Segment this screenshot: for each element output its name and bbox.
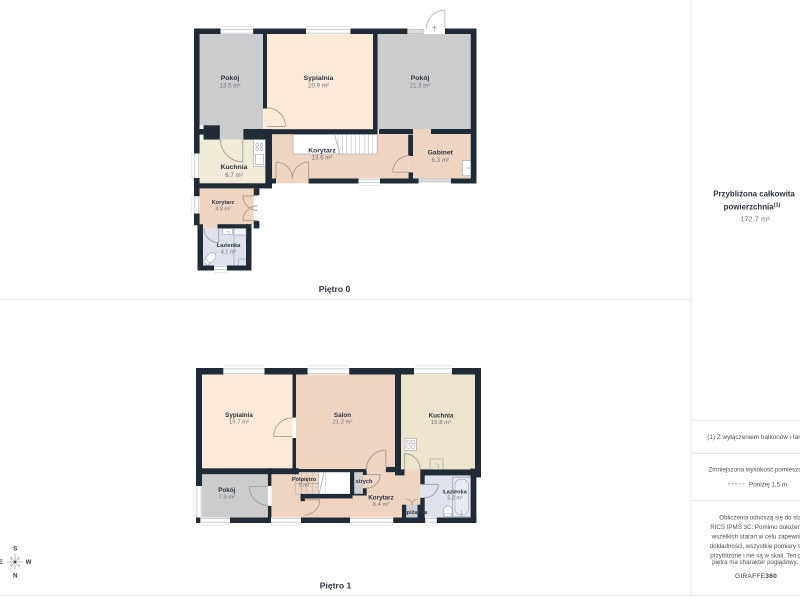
svg-text:5 m²: 5 m² [299, 483, 310, 489]
svg-text:S: S [13, 546, 17, 553]
svg-text:Piętro 0: Piętro 0 [319, 284, 351, 294]
svg-text:6.7 m²: 6.7 m² [225, 172, 243, 179]
svg-text:5.2 m²: 5.2 m² [447, 496, 462, 502]
svg-text:15.8 m²: 15.8 m² [431, 420, 451, 426]
svg-text:piętra ma charakter poglądowy.: piętra ma charakter poglądowy. [712, 559, 798, 566]
svg-text:13.5 m²: 13.5 m² [220, 82, 241, 89]
svg-text:7.3 m²: 7.3 m² [218, 495, 235, 501]
svg-text:Pokój: Pokój [221, 75, 240, 82]
svg-text:13.6 m²: 13.6 m² [312, 155, 333, 162]
svg-text:N: N [13, 573, 18, 580]
svg-text:Poniżej 1,5 m: Poniżej 1,5 m [749, 481, 787, 488]
svg-text:Salon: Salon [334, 412, 351, 419]
svg-text:19.7 m²: 19.7 m² [229, 420, 249, 426]
svg-text:W: W [26, 559, 32, 566]
svg-text:172.7 m²: 172.7 m² [740, 214, 770, 223]
svg-text:Łazienka: Łazienka [217, 243, 242, 249]
svg-text:RICS IPMS 3C. Pomimo dołożenia: RICS IPMS 3C. Pomimo dołożenia [710, 524, 800, 531]
svg-text:Kuchnia: Kuchnia [429, 413, 454, 420]
svg-text:dokładności, wszystkie pomiary: dokładności, wszystkie pomiary są [710, 543, 800, 550]
svg-text:21.2 m²: 21.2 m² [333, 420, 353, 426]
svg-text:Kuchnia: Kuchnia [221, 164, 248, 171]
svg-text:E: E [0, 559, 3, 566]
svg-text:spiżarnia: spiżarnia [404, 510, 428, 516]
svg-text:Sypialnia: Sypialnia [225, 412, 253, 419]
svg-text:Piętro 1: Piętro 1 [320, 581, 352, 591]
svg-text:Korytarz: Korytarz [368, 495, 394, 502]
svg-text:4.1 m²: 4.1 m² [221, 249, 236, 255]
svg-text:strych: strych [356, 479, 373, 485]
svg-text:Przybliżona całkowita: Przybliżona całkowita [713, 190, 795, 199]
svg-text:6.3 m²: 6.3 m² [432, 157, 450, 164]
svg-text:Pokój: Pokój [411, 75, 430, 82]
svg-text:Korytarz: Korytarz [212, 200, 235, 206]
svg-text:Gabinet: Gabinet [428, 150, 454, 157]
svg-text:21.3 m²: 21.3 m² [410, 82, 431, 89]
svg-text:Korytarz: Korytarz [308, 148, 336, 155]
svg-text:Pokój: Pokój [218, 487, 235, 494]
svg-text:8.4 m²: 8.4 m² [373, 502, 390, 508]
svg-text:(1) Z wyłączeniem balkonów i t: (1) Z wyłączeniem balkonów i tarasów. [707, 434, 800, 441]
svg-text:wszelkich starań w celu zapewn: wszelkich starań w celu zapewnienia [711, 533, 800, 540]
svg-text:GIRAFFE360: GIRAFFE360 [735, 573, 777, 580]
svg-text:Zmniejszona wysokość pomieszcz: Zmniejszona wysokość pomieszczeń [708, 467, 800, 474]
svg-text:Sypialnia: Sypialnia [304, 75, 334, 82]
svg-text:4.8 m²: 4.8 m² [215, 207, 230, 213]
svg-text:20.9 m²: 20.9 m² [308, 82, 329, 89]
svg-text:powierzchnia(1): powierzchnia(1) [724, 202, 781, 211]
svg-text:Obliczenia odnoszą się do stan: Obliczenia odnoszą się do standardu [719, 514, 800, 521]
